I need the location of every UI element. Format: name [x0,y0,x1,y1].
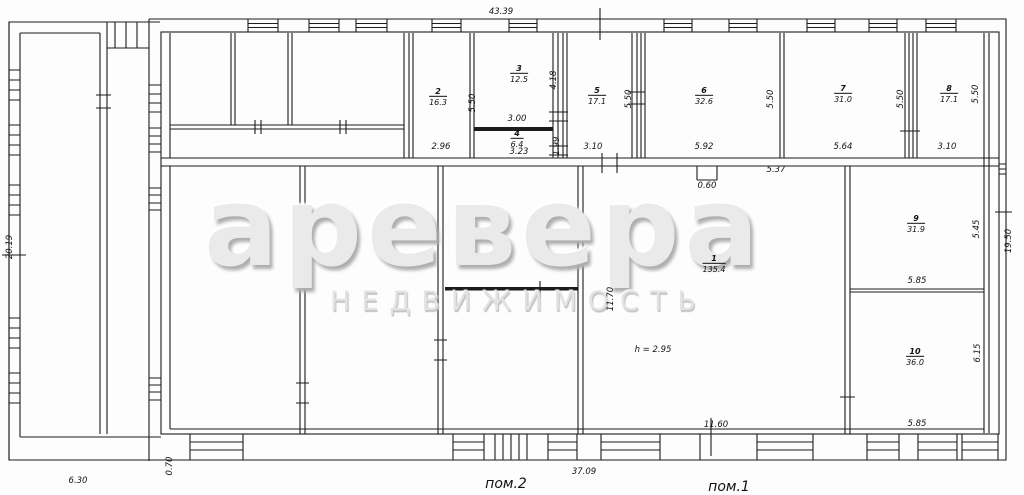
dim-overall-right: 19.50 [1005,229,1014,253]
dim-overall-bottom: 37.09 [572,468,596,477]
room-2-label: 2 16.3 [429,87,447,107]
room-10-label: 10 36.0 [906,347,924,367]
block-walls [170,33,404,158]
dim-room4-width: 3.23 [510,148,529,157]
windows-bottom [190,434,998,460]
dim-room7-width: 5.64 [834,143,853,152]
dim-room2-width: 2.96 [432,143,451,152]
watermark-brand: аревера [204,172,764,282]
dim-room9-height: 5.45 [973,220,982,239]
room-9-label: 9 31.9 [907,214,925,234]
dim-wing-offset: 0.70 [166,457,175,476]
dim-room4-height: 1.99 [553,137,562,156]
wing-walls [9,22,161,460]
dim-room5-height: 5.50 [625,90,634,109]
dim-notch: 0.60 [698,182,717,191]
dim-room3-width: 3.00 [508,115,527,124]
windows-top [248,19,956,32]
room-5-label: 5 17.1 [588,86,606,106]
dim-overall-left: 20.19 [6,235,15,259]
dim-room10-height: 6.15 [974,344,983,363]
dim-room1-width: 11.60 [704,421,728,430]
dim-room8-width: 3.10 [938,143,957,152]
dim-room6-height: 5.50 [767,90,776,109]
label-ceiling-height: h = 2.95 [635,346,672,355]
label-pom1: пом.1 [708,480,750,494]
floor-plan: аревера НЕДВИЖИМОСТЬ 43.39 37.09 20.19 1… [0,0,1024,495]
room-7-label: 7 31.0 [834,84,852,104]
room-1-label: 1 135.4 [703,254,726,274]
dim-room9-width: 5.85 [908,277,927,286]
label-pom2: пом.2 [485,477,527,491]
room-8-label: 8 17.1 [940,84,958,104]
dim-room1-height: 11.70 [607,287,616,311]
dim-room7-height: 5.50 [897,90,906,109]
dim-room6-width: 5.92 [695,143,714,152]
room-6-label: 6 32.6 [695,86,713,106]
shaft-walls [984,33,989,433]
dim-overall-top: 43.39 [489,8,513,17]
watermark-subtitle: НЕДВИЖИМОСТЬ [330,288,707,315]
dim-room10-width: 5.85 [908,420,927,429]
dim-room2-height: 5.50 [469,94,478,113]
dim-room8-height: 5.50 [972,85,981,104]
dim-wing-width: 6.30 [69,477,88,486]
room-3-label: 3 12.5 [510,64,528,84]
dim-room5-width: 3.10 [584,143,603,152]
dim-wall-span: 5.37 [767,166,786,175]
dim-room3-height: 4.18 [550,71,559,90]
